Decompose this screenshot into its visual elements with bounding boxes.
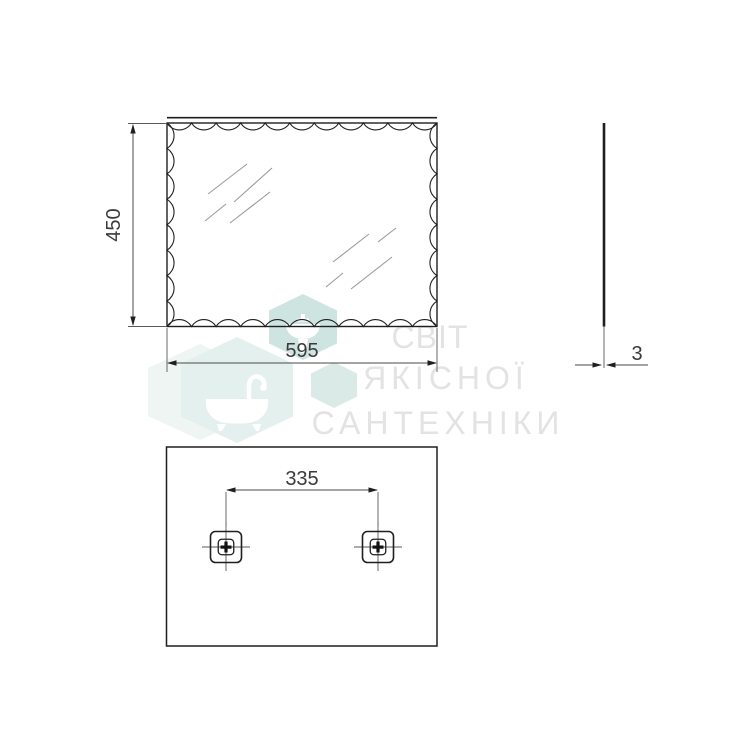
product-drawing-canvas: СВІТ ЯКІСНОЇ САНТЕХНІКИ: [0, 0, 750, 750]
arrowhead-left: [226, 487, 236, 492]
height-dimension-label: 450: [103, 208, 125, 241]
arrowhead-left: [167, 360, 177, 365]
scallops-left: [167, 123, 174, 327]
arrowhead-right: [369, 487, 379, 492]
screw-slot-vertical: [224, 542, 227, 553]
width-dimension: 595: [167, 328, 437, 372]
thickness-dimension: 3: [575, 343, 648, 368]
mirror-outline: [167, 123, 437, 327]
height-dimension: 450: [103, 124, 166, 327]
arrowhead-left: [606, 362, 616, 367]
mirror-rear-view: 335: [167, 447, 438, 646]
width-dimension-label: 595: [285, 340, 318, 362]
mirror-front-view: [167, 123, 437, 327]
mounting-bracket-right: [354, 523, 402, 571]
scallops-bottom: [167, 320, 437, 327]
thickness-dimension-label: 3: [631, 343, 642, 365]
scalloped-border: [167, 123, 437, 327]
arrowhead-up: [130, 124, 135, 134]
scallops-right: [430, 123, 437, 327]
technical-drawing: 450 595 3: [0, 0, 750, 750]
mount-spacing-dimension: 335: [226, 468, 378, 526]
arrowhead-right: [428, 360, 438, 365]
screw-slot-vertical: [376, 542, 379, 553]
reflection-lines: [205, 164, 396, 289]
arrowhead-down: [130, 317, 135, 327]
mount-spacing-dimension-label: 335: [285, 468, 318, 490]
scallops-top: [167, 123, 437, 130]
arrowhead-right: [593, 362, 603, 367]
mounting-bracket-left: [202, 523, 250, 571]
